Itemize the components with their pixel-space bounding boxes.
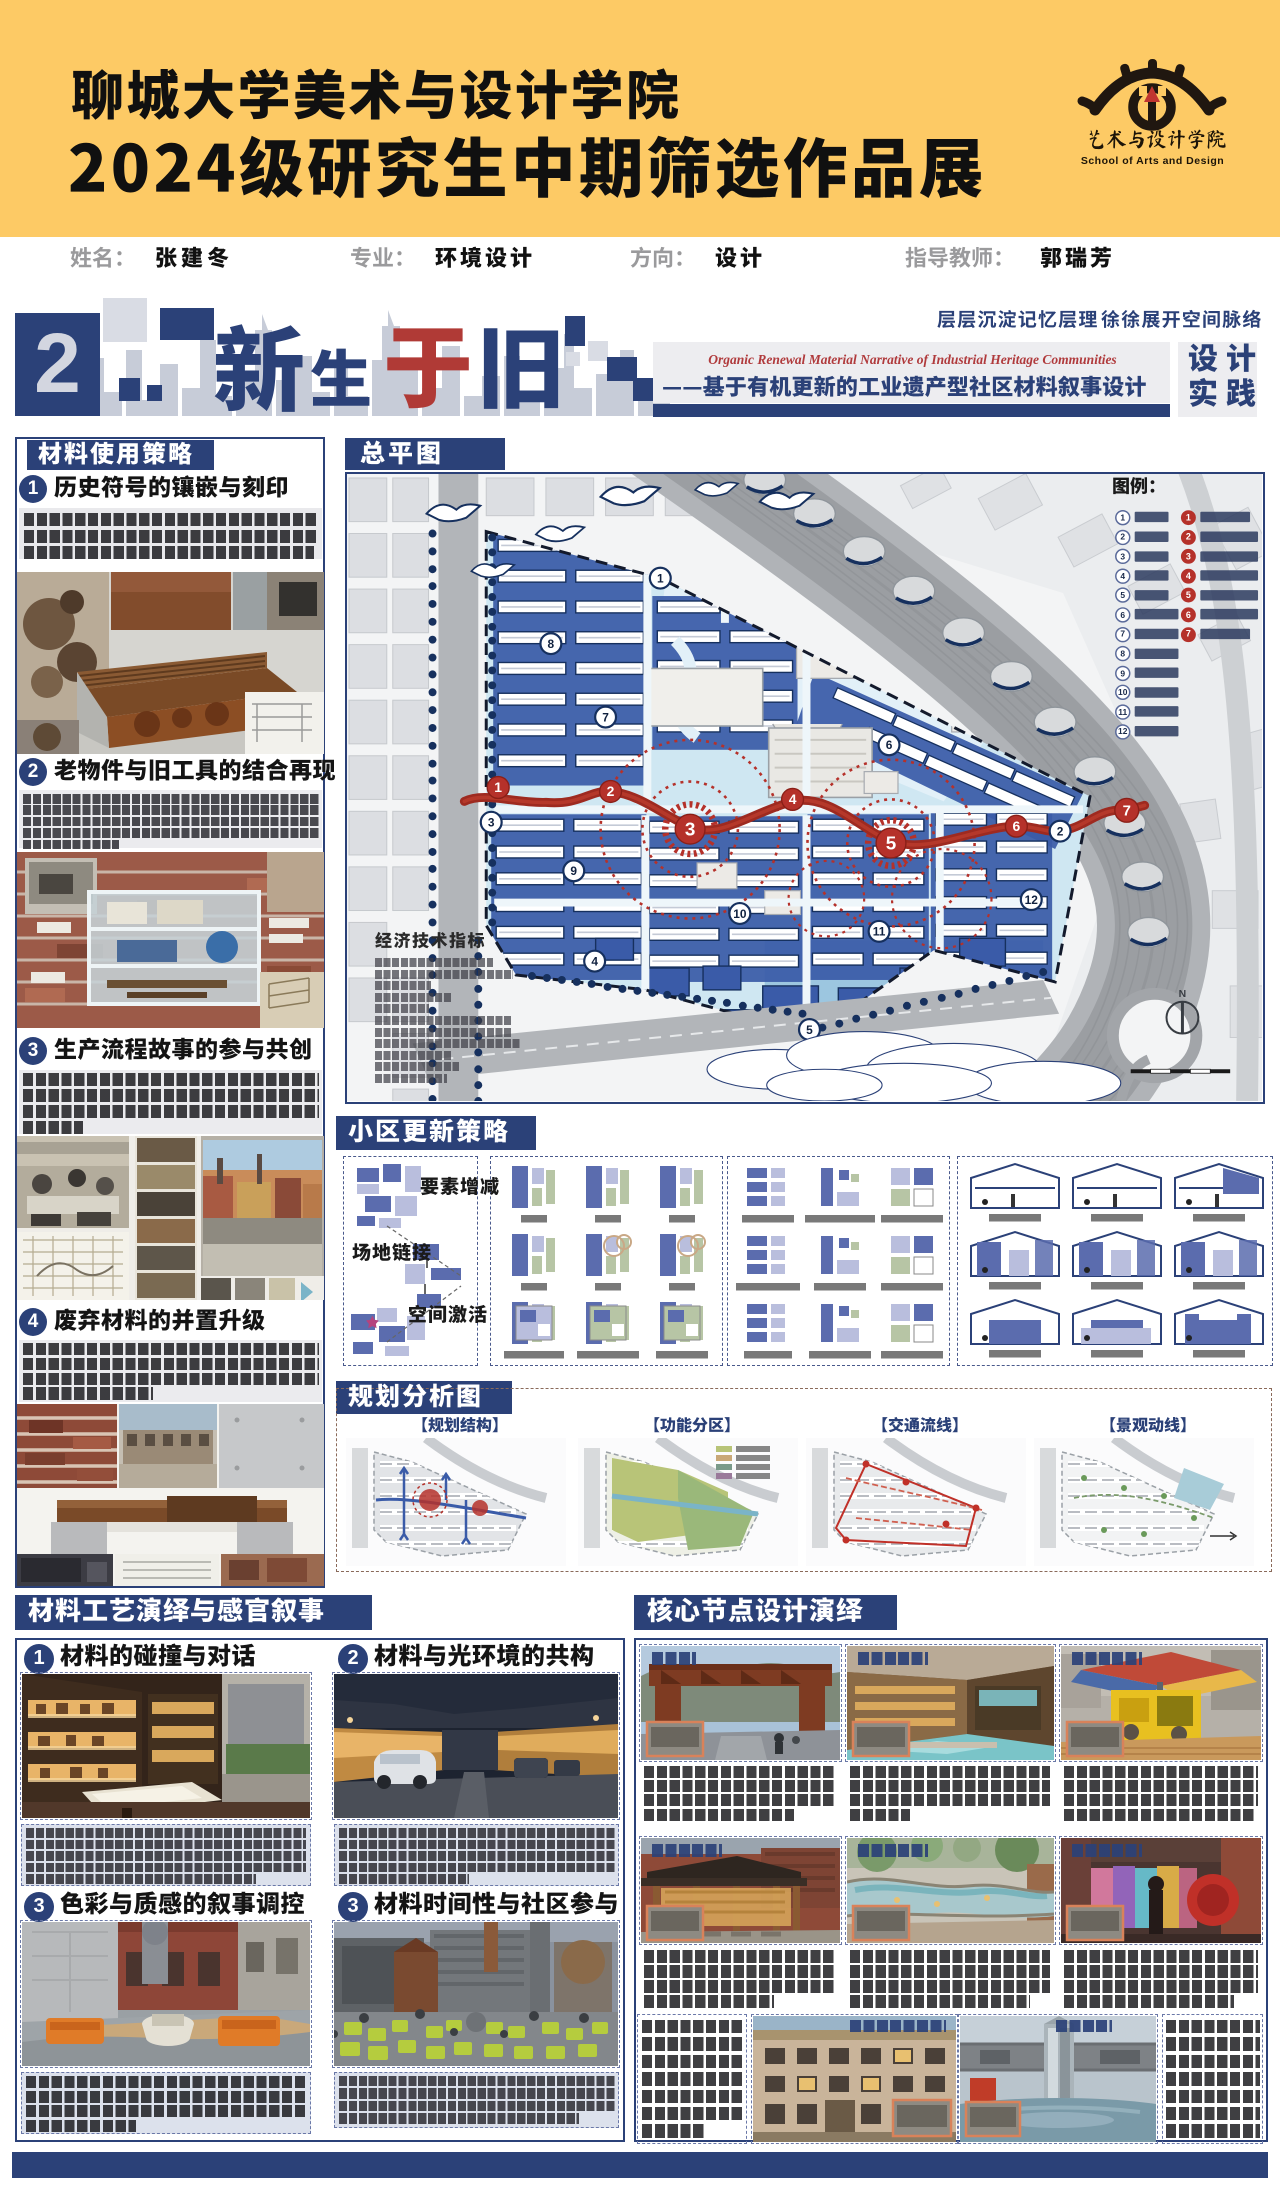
- svg-text:N: N: [1179, 989, 1187, 1000]
- svg-text:7: 7: [1186, 629, 1191, 639]
- svg-text:6: 6: [1186, 610, 1191, 620]
- svg-text:5: 5: [1120, 590, 1125, 600]
- svg-text:9: 9: [570, 864, 577, 878]
- svg-text:7: 7: [1120, 629, 1125, 639]
- svg-text:1: 1: [657, 572, 664, 586]
- svg-text:3: 3: [1120, 551, 1125, 561]
- svg-text:2: 2: [1057, 825, 1064, 839]
- svg-text:6: 6: [1120, 610, 1125, 620]
- svg-text:6: 6: [1012, 818, 1020, 834]
- svg-text:2: 2: [607, 783, 615, 799]
- svg-text:11: 11: [873, 925, 886, 939]
- svg-text:1: 1: [1186, 513, 1191, 523]
- svg-text:10: 10: [733, 907, 747, 921]
- svg-text:4: 4: [789, 791, 797, 807]
- svg-text:5: 5: [1186, 590, 1191, 600]
- svg-text:4: 4: [1120, 571, 1125, 581]
- svg-text:11: 11: [1118, 707, 1127, 717]
- svg-text:3: 3: [1186, 551, 1191, 561]
- svg-text:8: 8: [548, 637, 555, 651]
- svg-text:12: 12: [1025, 893, 1039, 907]
- svg-text:10: 10: [1118, 687, 1128, 697]
- svg-text:1: 1: [494, 779, 502, 795]
- svg-text:9: 9: [1120, 668, 1125, 678]
- svg-text:2: 2: [1120, 531, 1125, 541]
- svg-text:3: 3: [685, 818, 696, 839]
- svg-text:5: 5: [806, 1023, 813, 1037]
- svg-text:4: 4: [591, 955, 598, 969]
- svg-text:5: 5: [886, 832, 897, 853]
- svg-text:4: 4: [1186, 571, 1191, 581]
- svg-text:7: 7: [1123, 803, 1131, 819]
- svg-text:12: 12: [1118, 726, 1128, 736]
- svg-text:2: 2: [1186, 531, 1191, 541]
- svg-text:1: 1: [1120, 513, 1125, 523]
- svg-text:7: 7: [602, 710, 609, 724]
- svg-text:8: 8: [1120, 649, 1125, 659]
- svg-text:3: 3: [488, 816, 495, 830]
- svg-text:6: 6: [886, 738, 893, 752]
